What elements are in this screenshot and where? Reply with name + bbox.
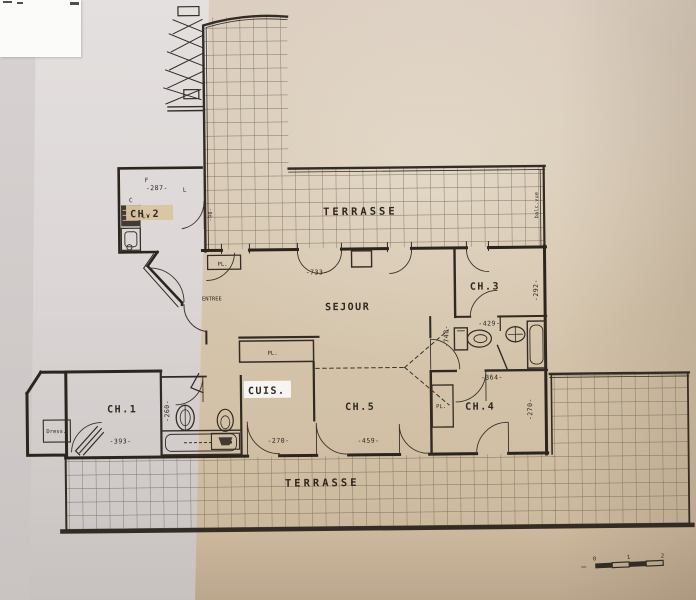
floor-plan-drawing: TERRASSE TERRASSE SEJOUR CH.2 CH.3 CH.4 … bbox=[0, 0, 696, 600]
room-label-entree: ENTREE bbox=[202, 296, 222, 302]
dim-459: -459- bbox=[357, 437, 379, 445]
room-label-ch1: CH.1 bbox=[107, 404, 137, 415]
dim-287: -287- bbox=[146, 184, 168, 192]
dim-748: -748- bbox=[442, 325, 450, 347]
scale-tick-2: 2 bbox=[661, 553, 665, 559]
bathroom2-fixtures-icon bbox=[161, 404, 242, 455]
dim-270-bottom: -270- bbox=[267, 437, 289, 445]
closet-label-pl-ch4: PL. bbox=[436, 404, 446, 410]
dim-429: -429- bbox=[478, 319, 500, 327]
dim-260: -260- bbox=[163, 400, 171, 422]
door-leaf-hatch bbox=[75, 427, 103, 455]
dim-292: -292- bbox=[532, 279, 540, 301]
appliance-letter-c: C bbox=[129, 197, 133, 204]
appliance-letter-lv: LV bbox=[142, 213, 150, 220]
appliance-letter-l: L bbox=[183, 187, 187, 194]
dim-733: -733- bbox=[306, 268, 328, 276]
scale-tick-0: 0 bbox=[593, 556, 597, 562]
scale-tick-1: 1 bbox=[627, 555, 631, 561]
room-label-ch5: CH.5 bbox=[345, 402, 375, 413]
room-label-sejour: SEJOUR bbox=[325, 302, 370, 313]
terrace-edge-note: balc.vue bbox=[534, 192, 540, 219]
dim-270-right: -270- bbox=[526, 398, 534, 420]
room-label-ch3: CH.3 bbox=[470, 281, 500, 292]
terrace-bottom-grid bbox=[65, 373, 690, 531]
photographed-floor-plan: TERRASSE TERRASSE SEJOUR CH.2 CH.3 CH.4 … bbox=[0, 0, 696, 600]
dim-90: -90- bbox=[208, 207, 214, 221]
closet-label-pl-sejour: PL. bbox=[268, 351, 278, 357]
room-label-ch4: CH.4 bbox=[465, 401, 495, 412]
room-label-cuis: CUIS. bbox=[248, 386, 286, 397]
room-label-terrasse-top: TERRASSE bbox=[323, 205, 398, 218]
appliance-letter-f: F bbox=[145, 177, 149, 184]
room-label-terrasse-bottom: TERRASSE bbox=[285, 477, 360, 490]
dim-393: -393- bbox=[109, 437, 131, 445]
scale-bar: 0 1 2 bbox=[581, 553, 665, 569]
planter-hatch-icon bbox=[163, 7, 204, 111]
dim-364: -364- bbox=[481, 373, 503, 381]
room-label-dressing: Dress. bbox=[46, 429, 66, 435]
closets bbox=[42, 250, 454, 442]
closet-label-pl-entree: PL. bbox=[218, 262, 228, 268]
